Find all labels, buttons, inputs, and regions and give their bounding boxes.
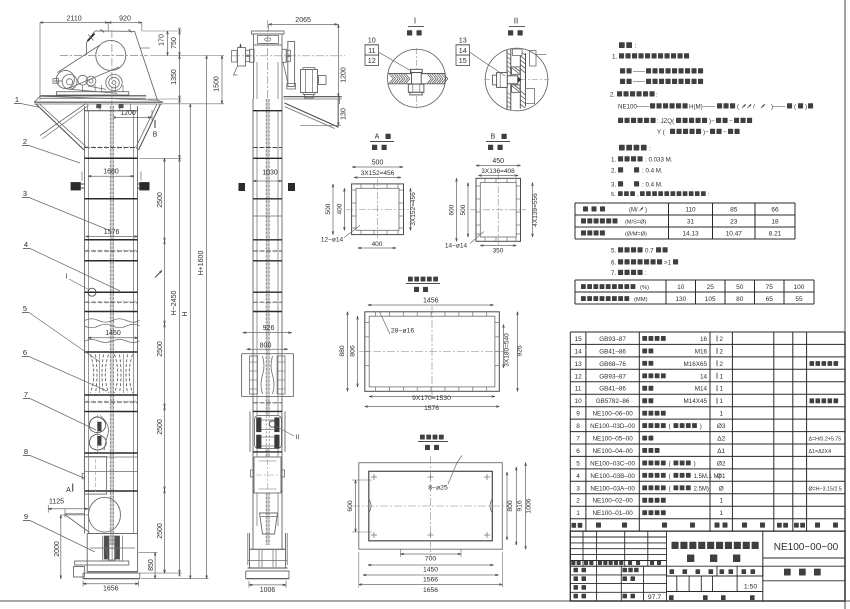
svg-text:880: 880 <box>339 345 346 357</box>
svg-text:1350: 1350 <box>171 69 178 85</box>
svg-text:(: ( <box>669 461 671 467</box>
svg-text:——: —— <box>633 80 645 86</box>
svg-text:10: 10 <box>574 398 582 405</box>
svg-text:8−ø25: 8−ø25 <box>428 485 448 492</box>
svg-text:II: II <box>296 434 300 441</box>
svg-text:750: 750 <box>171 37 178 49</box>
svg-text:1125: 1125 <box>49 499 64 506</box>
svg-text:8.21: 8.21 <box>769 231 782 238</box>
svg-text:500: 500 <box>325 203 332 214</box>
svg-text:(Ø/M=Ø): (Ø/M=Ø) <box>625 232 647 238</box>
svg-text:25: 25 <box>707 284 715 291</box>
svg-text:1: 1 <box>719 373 723 380</box>
svg-text:3X152=456: 3X152=456 <box>361 170 395 177</box>
svg-text:Δ2: Δ2 <box>717 436 725 443</box>
svg-text:1: 1 <box>719 411 723 418</box>
svg-text:10.47: 10.47 <box>726 231 743 238</box>
svg-text:11: 11 <box>368 46 375 55</box>
svg-text:1: 1 <box>719 498 723 505</box>
svg-text:2: 2 <box>719 361 723 368</box>
svg-text:GB41–86: GB41–86 <box>599 348 626 355</box>
svg-text:1576: 1576 <box>104 229 120 236</box>
svg-text:I: I <box>66 274 68 281</box>
svg-text:2: 2 <box>23 137 27 146</box>
svg-text:Ø=H−3.15/2.5: Ø=H−3.15/2.5 <box>809 486 842 492</box>
svg-text:2.: 2. <box>610 92 615 99</box>
svg-text:5: 5 <box>23 304 27 313</box>
svg-text:16: 16 <box>700 336 708 343</box>
svg-text::: : <box>635 43 637 50</box>
svg-text:NE100–04–00: NE100–04–00 <box>592 448 633 455</box>
svg-text:85: 85 <box>730 207 738 214</box>
svg-text:1:50: 1:50 <box>744 584 757 591</box>
svg-text:97.7: 97.7 <box>648 594 661 601</box>
svg-text:2500: 2500 <box>157 419 164 435</box>
svg-text:1456: 1456 <box>423 298 439 305</box>
svg-text:(: ( <box>669 474 671 480</box>
svg-text:H(M)——: H(M)—— <box>689 104 716 111</box>
svg-text:GB41–86: GB41–86 <box>599 386 626 393</box>
svg-text:800: 800 <box>507 500 514 512</box>
svg-text:13: 13 <box>574 361 582 368</box>
svg-text:11: 11 <box>575 386 582 393</box>
svg-text:I: I <box>414 17 416 26</box>
svg-text:1: 1 <box>719 398 723 405</box>
svg-text:15: 15 <box>459 56 467 65</box>
svg-text:15: 15 <box>574 336 582 343</box>
svg-text:2.: 2. <box>611 168 616 175</box>
svg-text:800: 800 <box>260 342 272 349</box>
svg-text:5.: 5. <box>611 248 616 255</box>
svg-text:7: 7 <box>24 390 28 399</box>
svg-text:14.13: 14.13 <box>682 231 699 238</box>
svg-text:GB93–87: GB93–87 <box>599 336 626 343</box>
svg-text:NE100−00−00: NE100−00−00 <box>774 542 839 553</box>
svg-text:14: 14 <box>700 373 708 380</box>
svg-text:3: 3 <box>576 485 580 492</box>
svg-text:−: − <box>723 129 727 136</box>
svg-text:NE100——: NE100—— <box>618 104 650 111</box>
svg-text:916: 916 <box>516 500 523 512</box>
svg-text:(M/: (M/ <box>629 208 638 214</box>
svg-text:H−2450: H−2450 <box>171 291 178 316</box>
svg-text:18: 18 <box>771 219 779 226</box>
svg-text:2.5M): 2.5M) <box>694 486 709 492</box>
svg-text:NE100–03C–00: NE100–03C–00 <box>590 460 635 467</box>
svg-text:H+1600: H+1600 <box>198 251 205 276</box>
svg-text:2: 2 <box>719 348 723 355</box>
svg-text:6.: 6. <box>611 260 616 267</box>
svg-text:6: 6 <box>23 348 27 357</box>
svg-text:1.: 1. <box>611 157 616 164</box>
svg-text:1656: 1656 <box>423 587 438 594</box>
svg-text:1: 1 <box>576 510 580 517</box>
svg-text:926: 926 <box>517 345 524 357</box>
svg-text:Δ=H/0.2+5.75: Δ=H/0.2+5.75 <box>809 437 842 443</box>
svg-text::: : <box>645 270 647 277</box>
svg-text:1200: 1200 <box>341 67 348 83</box>
svg-text:14: 14 <box>459 46 467 55</box>
svg-text:9X170=1530: 9X170=1530 <box>412 395 451 402</box>
svg-text:1500: 1500 <box>214 76 221 92</box>
svg-text:1006: 1006 <box>526 498 533 513</box>
svg-text:2: 2 <box>576 498 580 505</box>
svg-text:75: 75 <box>766 284 774 291</box>
svg-text:NE100–06–00: NE100–06–00 <box>592 411 633 418</box>
svg-text:130: 130 <box>341 108 348 120</box>
svg-text:600: 600 <box>347 500 354 512</box>
svg-text:1: 1 <box>719 510 723 517</box>
svg-text:Y (: Y ( <box>657 129 666 136</box>
svg-text:1656: 1656 <box>103 586 119 593</box>
svg-text:GB93–87: GB93–87 <box>599 373 626 380</box>
svg-text:12: 12 <box>574 373 582 380</box>
svg-text:GB5782–86: GB5782–86 <box>596 398 630 405</box>
svg-text:II: II <box>514 17 518 26</box>
svg-text:M16X65: M16X65 <box>684 361 708 368</box>
svg-text:)——: )—— <box>771 104 786 111</box>
svg-text:850: 850 <box>148 559 155 571</box>
svg-text:450: 450 <box>492 158 504 165</box>
svg-text:(M/S=Ø): (M/S=Ø) <box>625 220 646 226</box>
svg-text:): ) <box>645 208 647 214</box>
svg-text:500: 500 <box>460 204 467 215</box>
svg-text:): ) <box>694 461 696 467</box>
svg-text:55: 55 <box>795 296 803 303</box>
svg-text:NE100–02–00: NE100–02–00 <box>592 498 633 505</box>
svg-text:4: 4 <box>24 240 28 249</box>
svg-text:Ø3: Ø3 <box>717 423 726 430</box>
svg-text:926: 926 <box>263 325 275 332</box>
svg-text:9: 9 <box>24 512 28 521</box>
svg-text:806: 806 <box>350 345 357 357</box>
svg-text:9: 9 <box>576 411 580 418</box>
svg-text:4X139=556: 4X139=556 <box>532 193 539 227</box>
svg-text:: 0.4 M.: : 0.4 M. <box>642 182 663 189</box>
svg-text:1: 1 <box>719 386 723 393</box>
svg-text:——: —— <box>633 69 645 75</box>
svg-text:12−ø14: 12−ø14 <box>321 237 344 244</box>
svg-text:A: A <box>66 487 71 494</box>
svg-text:1.: 1. <box>612 54 617 61</box>
svg-text:1576: 1576 <box>424 405 439 412</box>
svg-text:3X152=456: 3X152=456 <box>410 192 417 226</box>
svg-text:2: 2 <box>719 336 723 343</box>
svg-text:−: − <box>729 118 733 125</box>
svg-text:7.: 7. <box>611 270 616 277</box>
svg-text:Δ1: Δ1 <box>717 448 725 455</box>
svg-text:(MM): (MM) <box>634 297 648 303</box>
svg-text:B: B <box>491 134 496 141</box>
svg-text:NE100–01–00: NE100–01–00 <box>592 510 633 517</box>
svg-text:(: ( <box>669 424 671 430</box>
svg-text:)−: )− <box>709 118 715 125</box>
svg-text:8: 8 <box>576 423 580 430</box>
svg-text:7: 7 <box>576 436 580 443</box>
svg-text:1450: 1450 <box>423 567 438 574</box>
svg-text:700: 700 <box>425 556 437 563</box>
svg-text:66: 66 <box>771 207 779 214</box>
svg-text:5: 5 <box>576 460 580 467</box>
svg-text:B: B <box>153 132 158 139</box>
svg-text:NE100–03A–00: NE100–03A–00 <box>590 485 635 492</box>
svg-text:3X180=540: 3X180=540 <box>504 333 511 367</box>
svg-text:Ø: Ø <box>719 485 724 492</box>
svg-text:2500: 2500 <box>157 341 164 357</box>
svg-text:80: 80 <box>736 296 744 303</box>
svg-text:105: 105 <box>705 296 716 303</box>
svg-text:): ) <box>700 424 702 430</box>
svg-text:2065: 2065 <box>295 17 311 24</box>
svg-text:1566: 1566 <box>423 577 438 584</box>
svg-text:: JZQ(: : JZQ( <box>657 118 675 125</box>
svg-text:>1: >1 <box>664 260 672 267</box>
svg-text:: 0.033 M.: : 0.033 M. <box>645 157 673 164</box>
svg-text:500: 500 <box>372 160 384 167</box>
svg-text:0.7: 0.7 <box>645 248 654 255</box>
svg-text:23: 23 <box>730 219 738 226</box>
svg-text:400: 400 <box>337 203 344 214</box>
svg-text:920: 920 <box>119 15 131 22</box>
svg-text:3.: 3. <box>611 182 616 189</box>
svg-text:/: / <box>753 104 755 111</box>
svg-text:50: 50 <box>736 284 744 291</box>
svg-text:M16: M16 <box>695 348 708 355</box>
svg-text:350: 350 <box>493 248 504 255</box>
svg-text:5.: 5. <box>611 192 616 198</box>
svg-text:A: A <box>375 134 380 141</box>
svg-text:NE100–03D–00: NE100–03D–00 <box>590 423 635 430</box>
svg-text:Δ1=Δ2X4: Δ1=Δ2X4 <box>809 449 832 455</box>
svg-text:2000: 2000 <box>54 541 61 557</box>
svg-text::: : <box>649 146 651 153</box>
svg-text:2110: 2110 <box>67 15 82 22</box>
svg-text:8: 8 <box>24 447 28 456</box>
svg-text:400: 400 <box>372 241 383 248</box>
svg-text:(: ( <box>669 486 671 492</box>
svg-text:M14X45: M14X45 <box>684 398 708 405</box>
svg-text:: 0.4 M.: : 0.4 M. <box>642 168 663 175</box>
svg-text:NE100–05–00: NE100–05–00 <box>592 436 633 443</box>
svg-text:1030: 1030 <box>262 170 278 177</box>
svg-text:1450: 1450 <box>105 330 121 337</box>
svg-text:Ø2: Ø2 <box>717 460 726 467</box>
svg-text:130: 130 <box>675 296 686 303</box>
svg-text:100: 100 <box>794 284 805 291</box>
svg-text:1006: 1006 <box>260 587 276 594</box>
svg-text:(%): (%) <box>640 285 649 291</box>
svg-text:13: 13 <box>459 36 467 45</box>
svg-text:Ø1: Ø1 <box>717 473 726 480</box>
svg-text:28−ø16: 28−ø16 <box>391 328 414 335</box>
svg-text:6: 6 <box>576 448 580 455</box>
svg-text:110: 110 <box>685 207 696 214</box>
svg-text:14−ø14: 14−ø14 <box>445 243 468 250</box>
svg-text:12: 12 <box>368 56 376 65</box>
svg-text:)−: )− <box>703 129 709 136</box>
svg-text:): ) <box>805 104 807 111</box>
svg-text:600: 600 <box>449 204 456 215</box>
svg-text:1680: 1680 <box>103 169 119 176</box>
svg-text:NE100–03B–00: NE100–03B–00 <box>590 473 635 480</box>
svg-text:10: 10 <box>677 284 685 291</box>
svg-text:14: 14 <box>574 348 582 355</box>
svg-text:4: 4 <box>576 473 580 480</box>
svg-text:1: 1 <box>15 95 19 104</box>
svg-text:2500: 2500 <box>157 523 164 539</box>
svg-text:M14: M14 <box>695 386 708 393</box>
svg-text:H: H <box>182 311 189 316</box>
svg-text:3: 3 <box>23 189 27 198</box>
svg-text:10: 10 <box>368 36 376 45</box>
svg-text:65: 65 <box>766 296 774 303</box>
svg-text:2500: 2500 <box>157 192 164 208</box>
svg-text:31: 31 <box>687 219 695 226</box>
svg-text:GB68–76: GB68–76 <box>599 361 626 368</box>
svg-text:170: 170 <box>159 34 166 46</box>
